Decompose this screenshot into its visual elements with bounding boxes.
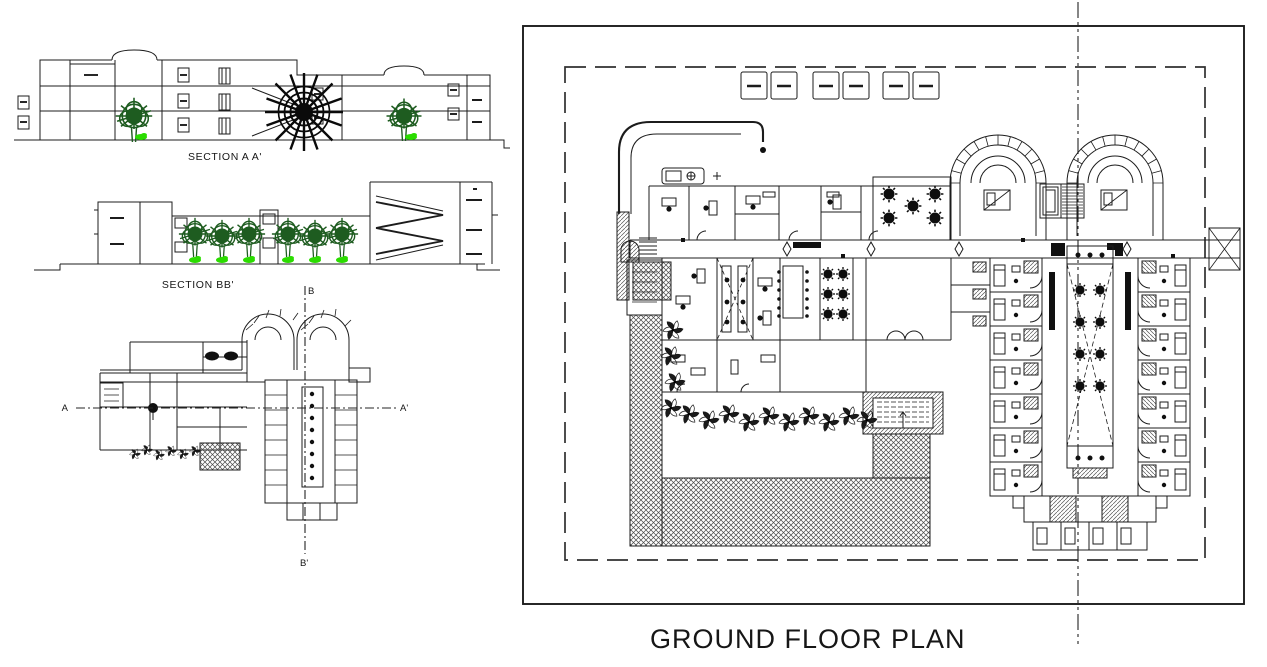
entry-driveway [619, 122, 766, 214]
side-stair-room [1209, 228, 1240, 270]
section-bb-drawing: SECTION BB' [30, 170, 505, 296]
guest-rooms-wing [990, 246, 1190, 550]
section-aa-drawing: SECTION A A' [12, 42, 512, 168]
rooms-upper-band [649, 186, 951, 240]
vehicle-icon [662, 168, 704, 184]
courtyard-hatch [630, 315, 662, 546]
banquet-table [777, 266, 809, 318]
entry-gate [617, 212, 671, 300]
courtyard [630, 315, 943, 546]
section-aa-label: SECTION A A' [188, 151, 262, 163]
horseshoe-wing-left [950, 135, 1046, 240]
ground-floor-plan-sheet [521, 0, 1247, 650]
black-tree-icon [265, 73, 343, 151]
cad-drawing-canvas: SECTION A A' [0, 0, 1267, 667]
parking-stalls [741, 72, 939, 99]
section-line-aa: A A' [62, 403, 409, 414]
long-table-room [717, 258, 753, 340]
marker-a-prime: A' [400, 403, 408, 414]
shrub-icon [189, 256, 348, 263]
palm-trees [661, 320, 877, 432]
horseshoe-wing-right [1067, 135, 1163, 240]
rooms-lower-left [627, 258, 990, 478]
key-plan-trees [130, 444, 201, 460]
key-plan-building [100, 309, 370, 520]
marker-b: B [308, 286, 314, 297]
key-plan-drawing: A A' B B' [40, 282, 440, 582]
ground-floor-plan-title: GROUND FLOOR PLAN [650, 624, 966, 655]
marker-b-prime: B' [300, 558, 308, 569]
water-feature [863, 392, 943, 434]
round-tables-room [821, 267, 850, 321]
marker-a: A [62, 403, 69, 414]
